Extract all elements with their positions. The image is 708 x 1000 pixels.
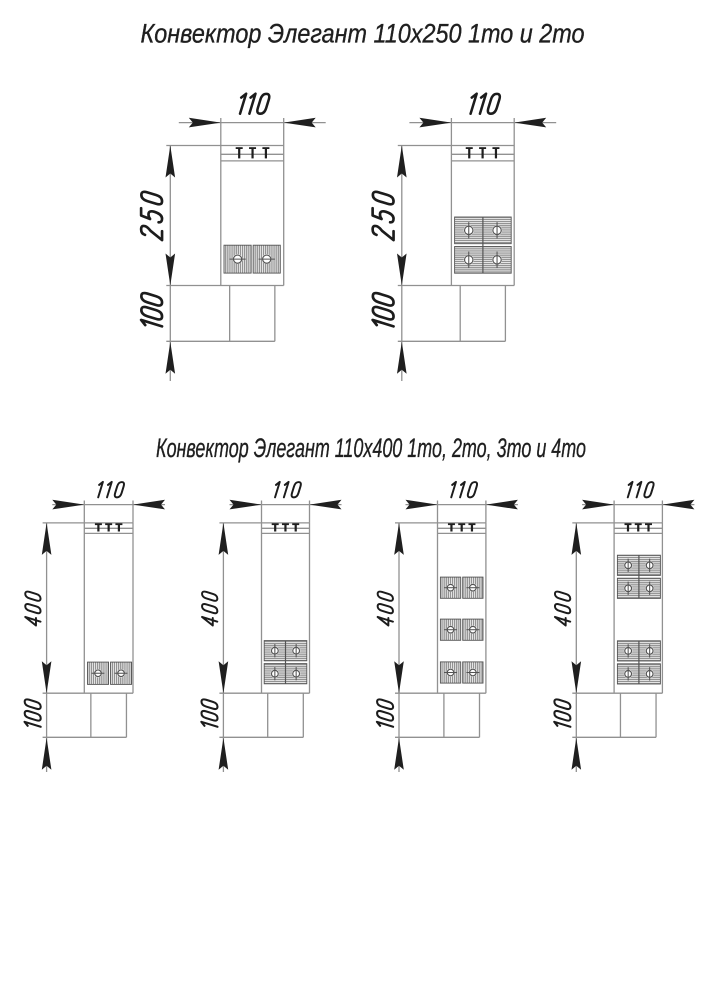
svg-text:Конвектор Элегант 110х250 1то: Конвектор Элегант 110х250 1то и 2то bbox=[141, 19, 585, 49]
svg-text:Конвектор Элегант 110х400 1то,: Конвектор Элегант 110х400 1то, 2то, 3то … bbox=[156, 433, 586, 463]
